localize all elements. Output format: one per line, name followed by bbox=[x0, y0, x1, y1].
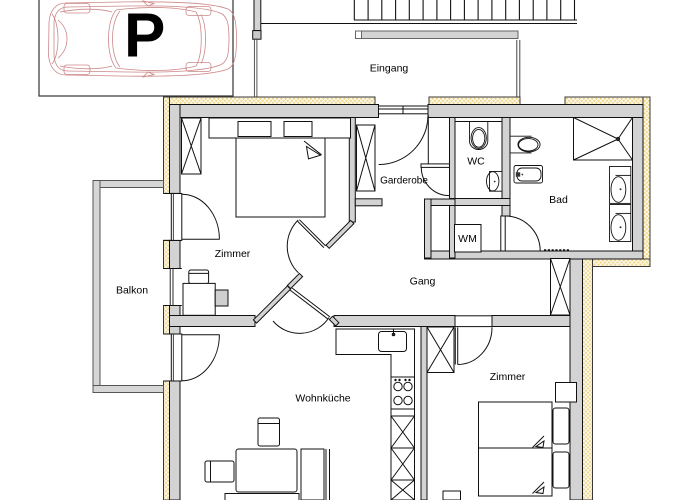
svg-text:WM: WM bbox=[458, 233, 477, 245]
svg-text:Garderobe: Garderobe bbox=[380, 175, 428, 186]
svg-text:Zimmer: Zimmer bbox=[215, 248, 251, 260]
svg-text:Gang: Gang bbox=[410, 276, 436, 288]
svg-text:Balkon: Balkon bbox=[116, 284, 148, 296]
svg-text:Bad: Bad bbox=[549, 194, 568, 206]
svg-text:Zimmer: Zimmer bbox=[490, 371, 526, 383]
svg-text:WC: WC bbox=[467, 156, 485, 168]
svg-text:Wohnküche: Wohnküche bbox=[295, 392, 350, 404]
svg-text:P: P bbox=[124, 2, 165, 71]
svg-text:Eingang: Eingang bbox=[370, 62, 409, 74]
